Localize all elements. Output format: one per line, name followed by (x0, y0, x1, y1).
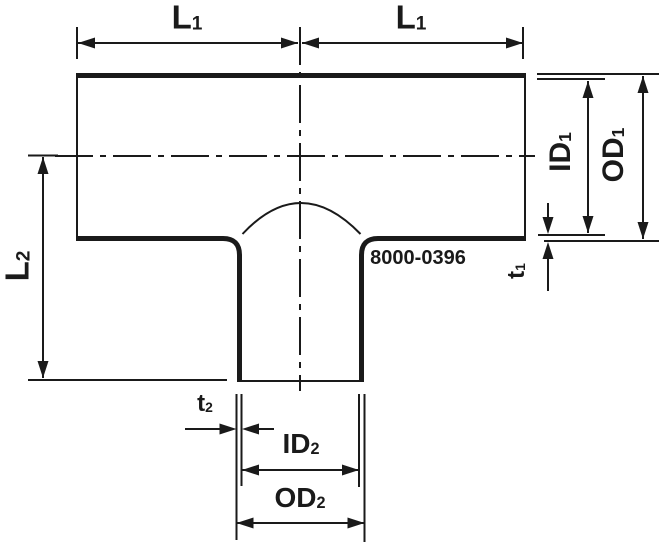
l2-arrow-top (38, 157, 49, 174)
tee-technical-drawing: L1 L1 L2 ID1 OD1 t1 t2 ID2 OD2 8000-0396 (0, 0, 659, 542)
dim-label-t1-main: t (503, 271, 530, 279)
od1-arrow-bottom (638, 222, 649, 239)
dim-label-t1: t1 (505, 263, 529, 279)
id2-arrow-right (342, 465, 359, 476)
l1-left-arrow-left (78, 38, 95, 49)
dim-label-t2: t2 (197, 392, 213, 416)
dim-label-id2-sub: 2 (310, 440, 319, 458)
dim-label-l1-right-sub: 1 (416, 14, 427, 35)
dim-label-l1-left-main: L (172, 0, 192, 36)
dim-label-id2-main: ID (282, 428, 310, 459)
dimension-lines (28, 27, 659, 542)
dim-label-id1-sub: 1 (555, 132, 575, 142)
dim-label-od2: OD2 (274, 484, 325, 512)
dim-label-t2-main: t (197, 390, 205, 417)
od2-arrow-left (237, 518, 254, 529)
id2-arrow-left (242, 465, 259, 476)
dim-label-od1: OD1 (599, 128, 629, 183)
dim-label-od2-main: OD (274, 482, 316, 513)
dim-label-t1-sub: 1 (512, 263, 528, 271)
run-bottom-left-wall (77, 239, 240, 382)
part-number: 8000-0396 (370, 248, 466, 268)
dim-label-l1-left: L1 (172, 1, 203, 34)
l1-right-arrow-right (506, 38, 523, 49)
id1-arrow-top (583, 81, 594, 98)
centerlines (55, 27, 535, 391)
od2-arrow-right (348, 518, 365, 529)
t2-arrow-right (220, 424, 237, 435)
dim-label-od2-sub: 2 (316, 494, 325, 512)
dim-label-id1-main: ID (544, 142, 577, 172)
l1-left-arrow-right (281, 38, 298, 49)
dim-label-l2-main: L (0, 261, 36, 281)
drawing-canvas (0, 0, 659, 542)
dim-label-id1: ID1 (546, 132, 576, 172)
t2-arrow-left (242, 424, 259, 435)
dim-label-l1-right-main: L (396, 0, 416, 36)
arrowheads (38, 38, 649, 529)
od1-arrow-top (638, 76, 649, 93)
t1-arrow-down (543, 217, 554, 234)
l2-arrow-bottom (38, 361, 49, 378)
weld-saddle-arc (243, 203, 361, 234)
l1-right-arrow-left (302, 38, 319, 49)
t1-arrow-up (543, 242, 554, 259)
dim-label-od1-main: OD (597, 137, 630, 182)
dim-label-l2-sub: 2 (14, 251, 35, 262)
dim-label-l1-left-sub: 1 (192, 14, 203, 35)
dim-label-t2-sub: 2 (205, 399, 213, 415)
dim-label-id2: ID2 (282, 430, 319, 458)
dim-label-l2: L2 (1, 251, 34, 282)
dim-label-od1-sub: 1 (608, 128, 628, 138)
dim-label-l1-right: L1 (396, 1, 427, 34)
id1-arrow-bottom (583, 216, 594, 233)
